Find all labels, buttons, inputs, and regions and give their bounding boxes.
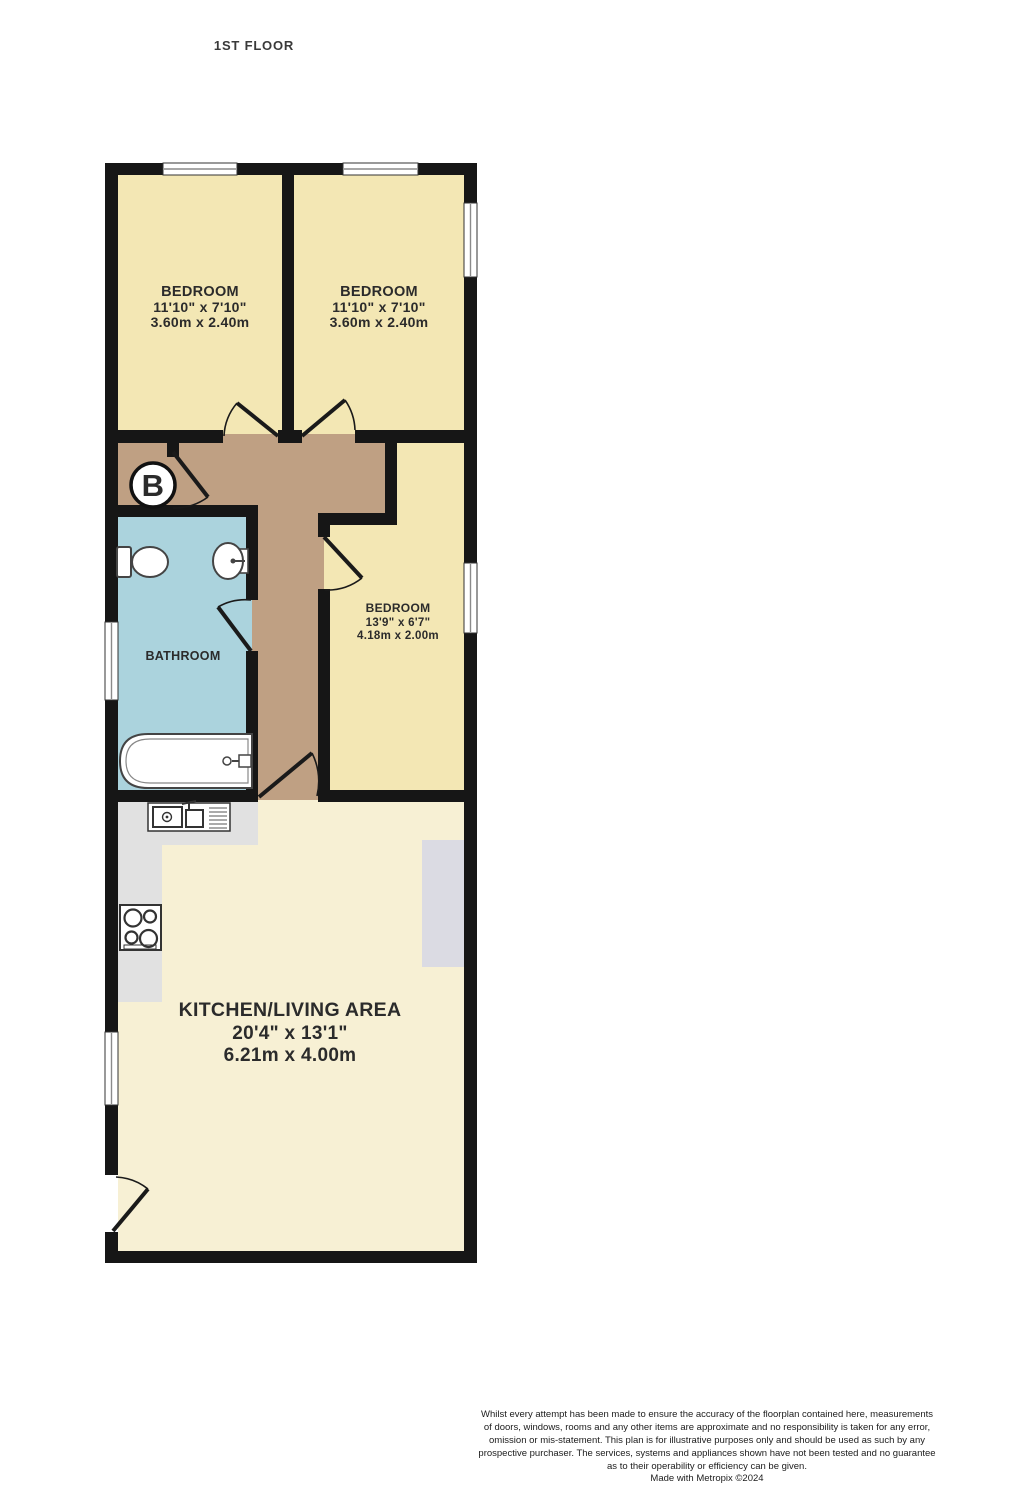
- window-bedroom2-top: [343, 163, 418, 175]
- kitchen-name: KITCHEN/LIVING AREA: [179, 999, 402, 1021]
- wall-right: [464, 163, 477, 1263]
- wall-bedrooms-bottom-center: [278, 430, 302, 443]
- window-bedroom3-right: [464, 563, 477, 633]
- disclaimer-line-3: omission or mis-statement. This plan is …: [489, 1435, 925, 1446]
- wall-bedroom3-bottom: [318, 790, 477, 802]
- wall-bedrooms-bottom-right: [355, 430, 464, 443]
- kitchen-furniture-right: [422, 840, 464, 967]
- disclaimer-line-2: of doors, windows, rooms and any other i…: [484, 1422, 930, 1433]
- window-bedroom2-right: [464, 203, 477, 277]
- floorplan-page: B BEDROOM 11'10" x 7'10" 3.60m x 2.40m B…: [0, 0, 1020, 1486]
- bathroom-label: BATHROOM: [145, 649, 220, 663]
- boiler-symbol: B: [131, 463, 175, 507]
- wall-bedroom-divider: [282, 163, 294, 436]
- kitchen-imperial: 20'4" x 13'1": [232, 1023, 347, 1044]
- wall-bathroom-bottom: [105, 790, 258, 802]
- bedroom3-imperial: 13'9" x 6'7": [366, 617, 431, 629]
- bedroom3-label: BEDROOM 13'9" x 6'7" 4.18m x 2.00m: [357, 601, 439, 642]
- bedroom1-metric: 3.60m x 2.40m: [151, 314, 250, 330]
- bedroom3-name: BEDROOM: [366, 601, 431, 615]
- disclaimer-line-5: as to their operability or efficiency ca…: [607, 1461, 807, 1472]
- bedroom2-name: BEDROOM: [340, 284, 418, 300]
- wall-bedroom3-left-lower: [318, 589, 330, 802]
- toilet-icon: [117, 547, 168, 577]
- window-kitchen-left: [105, 1032, 118, 1105]
- bedroom3-metric: 4.18m x 2.00m: [357, 630, 439, 642]
- footer-disclaimer: Whilst every attempt has been made to en…: [478, 1409, 935, 1484]
- wall-bedrooms-bottom-left: [118, 430, 223, 443]
- floor-title: 1ST FLOOR: [214, 38, 294, 53]
- bedroom1-label: BEDROOM 11'10" x 7'10" 3.60m x 2.40m: [151, 284, 250, 330]
- boiler-letter: B: [142, 468, 165, 503]
- bedroom2-imperial: 11'10" x 7'10": [332, 299, 425, 315]
- bedroom1-imperial: 11'10" x 7'10": [153, 299, 246, 315]
- kitchen-sink-icon: [148, 801, 230, 831]
- disclaimer-line-4: prospective purchaser. The services, sys…: [478, 1448, 935, 1459]
- window-bathroom-left: [105, 622, 118, 700]
- wall-hallway-right-stub: [385, 430, 397, 525]
- metropix-credit: Made with Metropix ©2024: [650, 1473, 763, 1484]
- wall-bedroom3-left-upper: [318, 513, 330, 537]
- bathroom-sink-icon: [213, 543, 248, 579]
- bedroom2-label: BEDROOM 11'10" x 7'10" 3.60m x 2.40m: [330, 284, 429, 330]
- entry-door-gap: [105, 1175, 118, 1232]
- wall-bottom: [105, 1251, 477, 1263]
- floorplan-svg: B BEDROOM 11'10" x 7'10" 3.60m x 2.40m B…: [0, 0, 1020, 1486]
- disclaimer-line-1: Whilst every attempt has been made to en…: [481, 1409, 933, 1420]
- window-bedroom1-top: [163, 163, 237, 175]
- bedroom1-name: BEDROOM: [161, 284, 239, 300]
- kitchen-metric: 6.21m x 4.00m: [224, 1045, 357, 1066]
- hallway-floor-corridor: [250, 517, 324, 802]
- hob-icon: [120, 905, 161, 950]
- bedroom3-floor-notch: [391, 434, 470, 525]
- bedroom2-metric: 3.60m x 2.40m: [330, 314, 429, 330]
- bathtub-icon: [120, 734, 252, 788]
